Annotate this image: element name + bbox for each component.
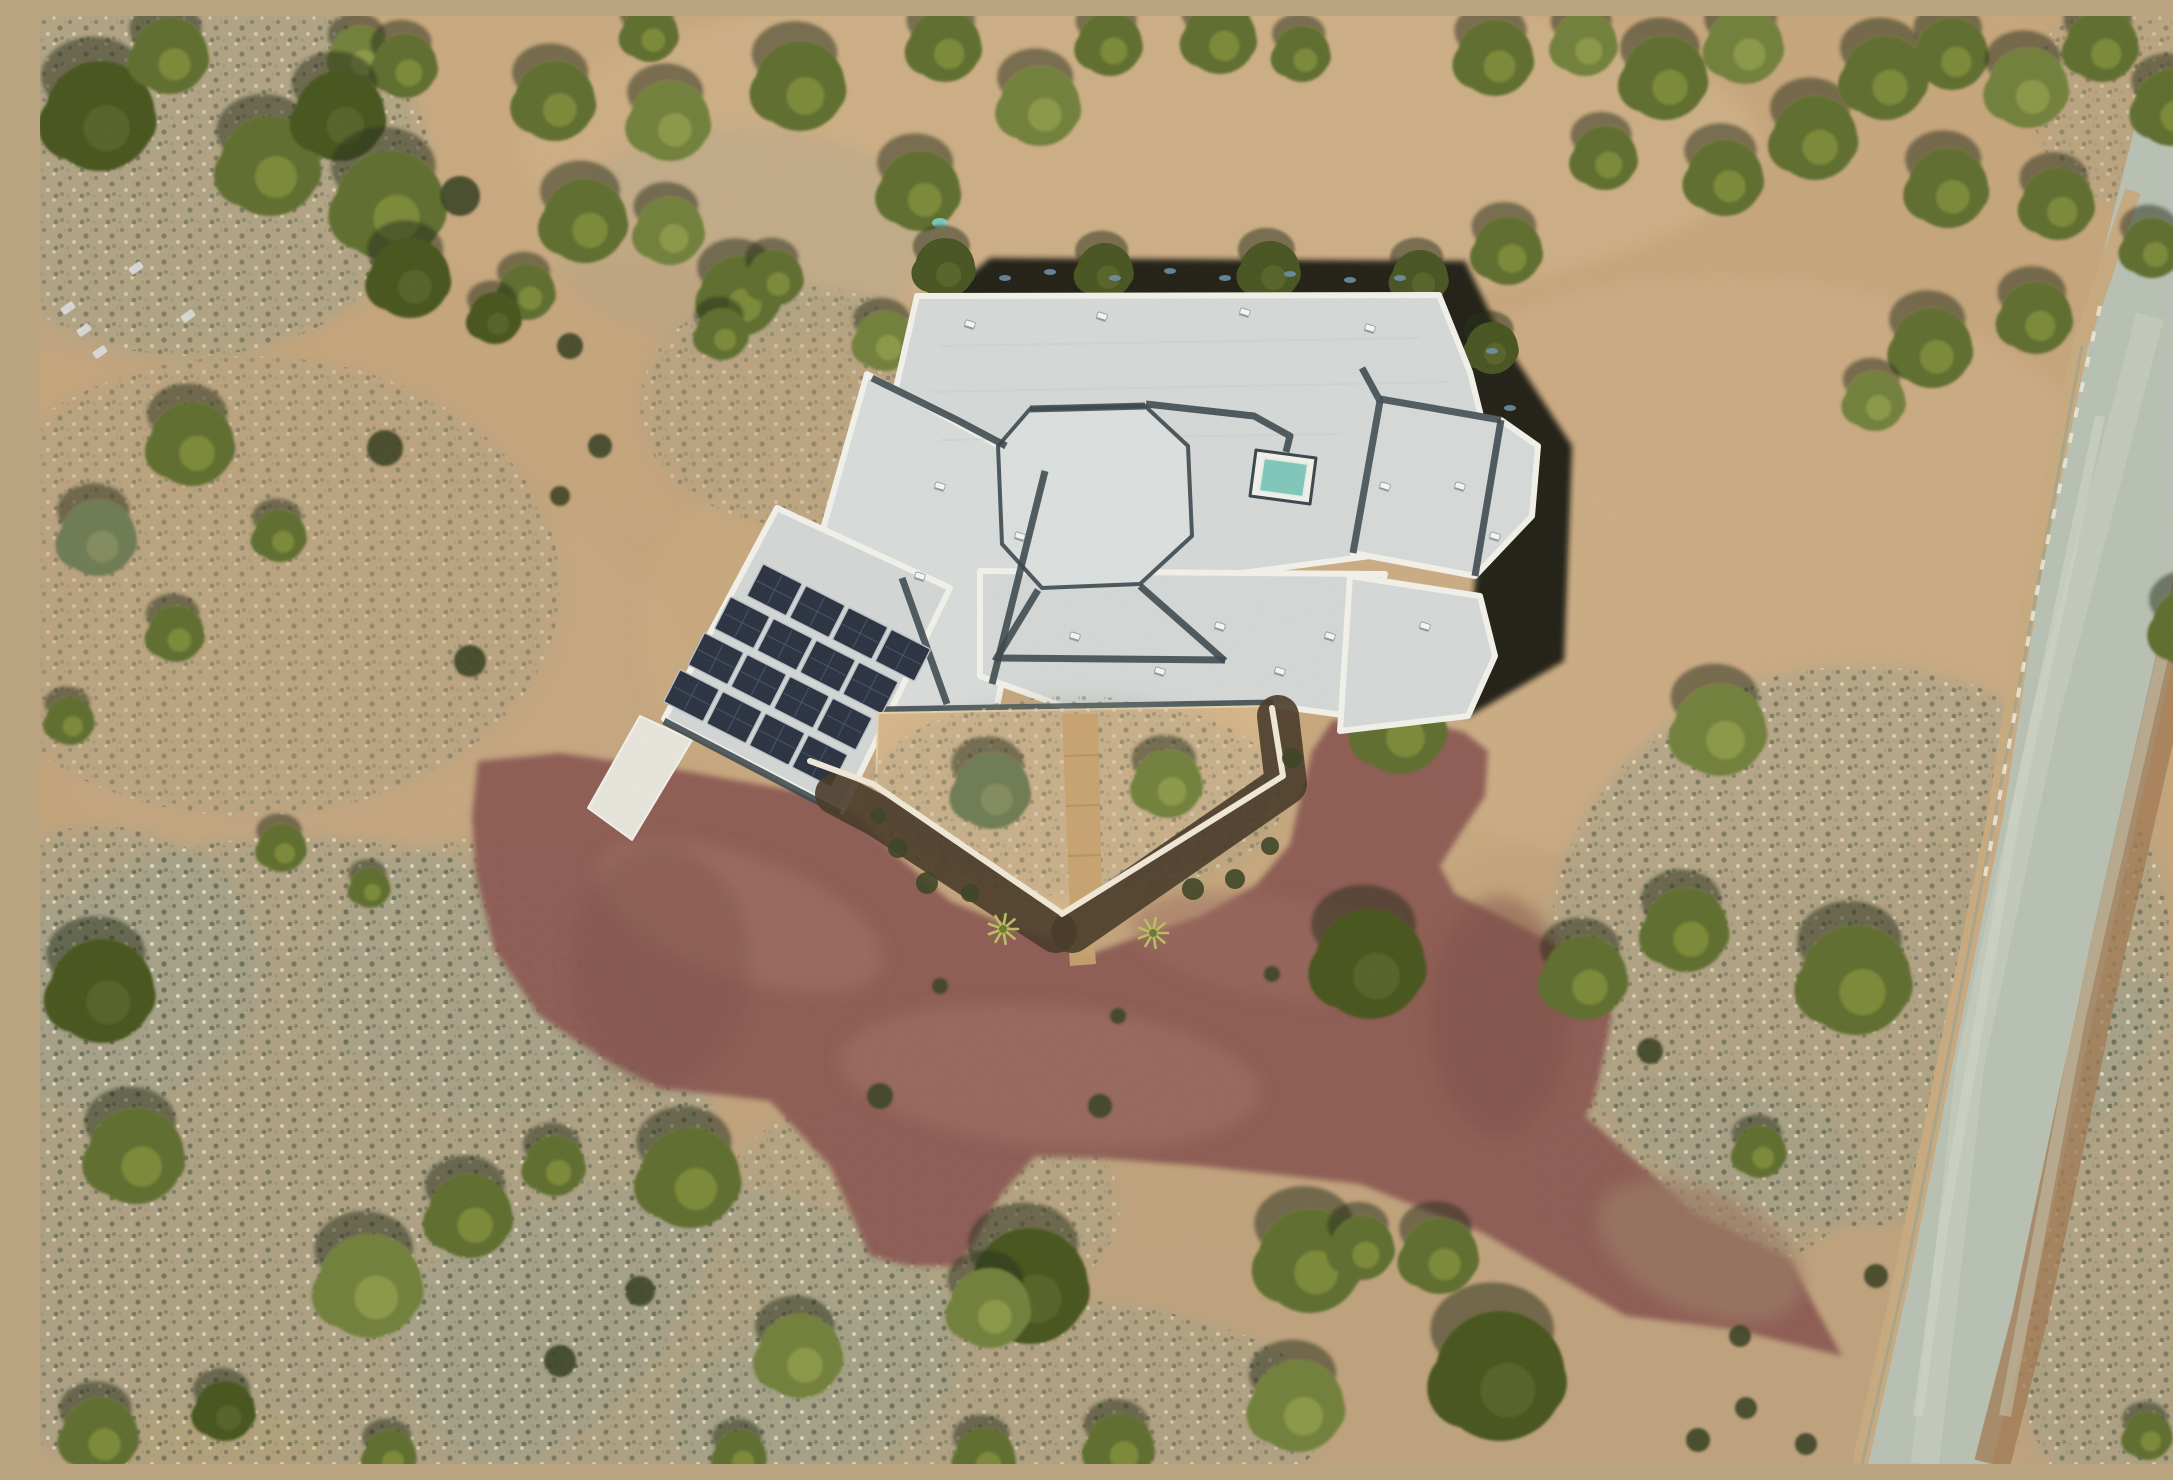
aerial-scene <box>40 16 2173 1464</box>
film-grain <box>40 16 2173 1464</box>
aerial-photograph <box>40 16 2173 1464</box>
